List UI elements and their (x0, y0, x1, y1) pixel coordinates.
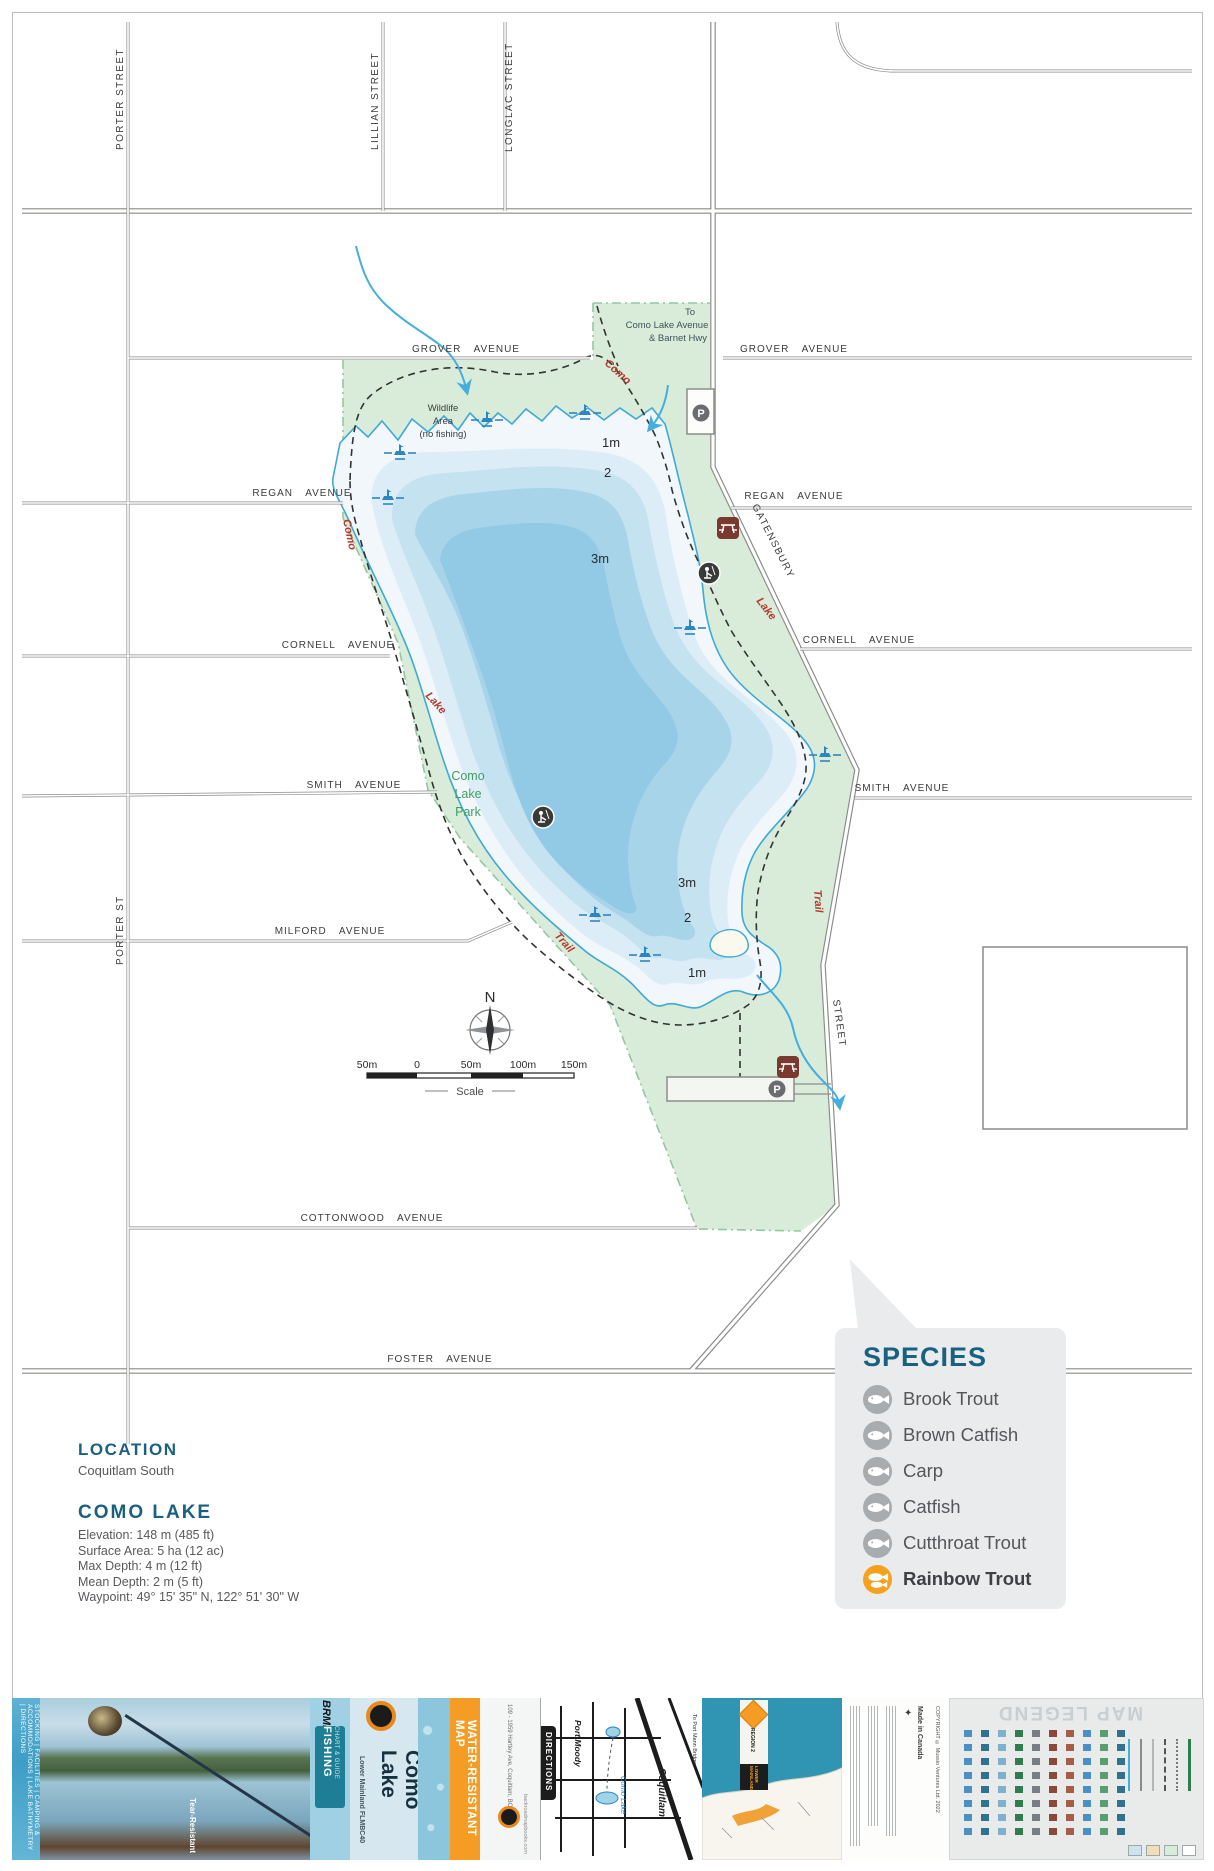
species-name: Brown Catfish (903, 1424, 1018, 1446)
svg-text:Como Lake Avenue: Como Lake Avenue (626, 320, 709, 331)
street-label-porter: PORTER STREET (115, 48, 126, 150)
svg-text:Como Lake: Como Lake (619, 1776, 628, 1814)
cover-spine: FISHING HOT SPOTS | SPECIES & STOCKING |… (12, 1698, 40, 1860)
species-row: Brook Trout (863, 1381, 1066, 1417)
publisher-address: 109 - 1959 Hartley Ave, Coquitlam, BC (506, 1704, 512, 1807)
fish-icon (863, 1493, 892, 1522)
region-map-art (702, 1698, 842, 1860)
cover-title: Como Lake (376, 1750, 418, 1860)
street-label-porter-st: PORTER ST (115, 895, 126, 965)
region-name-band: LOWER MAINLAND (740, 1764, 768, 1790)
street-label-lillian: LILLIAN STREET (370, 52, 381, 150)
species-title: SPECIES (863, 1342, 1066, 1373)
svg-text:To: To (685, 307, 695, 318)
cover-photo: Tear-Resistant (40, 1698, 310, 1860)
svg-text:To Port Mann Bridge: To Port Mann Bridge (691, 1714, 697, 1764)
backroad-mapbooks-badge-icon (366, 1701, 396, 1731)
park-label: Como Lake Park (451, 769, 484, 819)
svg-text:150m: 150m (561, 1059, 588, 1071)
fine-print-text (850, 1706, 861, 1846)
svg-text:Wildlife: Wildlife (428, 403, 459, 414)
svg-text:Coquitlam: Coquitlam (656, 1768, 667, 1817)
shore-fishing-icon (532, 806, 554, 828)
region-map-panel: REGION 2 LOWER MAINLAND (702, 1698, 842, 1860)
directions-inset-map: Port Moody Como Lake Coquitlam To Port M… (540, 1698, 704, 1860)
brmb-round-logo (498, 1806, 520, 1828)
ave-label-smith-l: SMITH AVENUE (307, 780, 402, 791)
fish-icon (863, 1385, 892, 1414)
cover-subtitle: Lower Mainland FLMBC40 (358, 1756, 365, 1843)
inset-map-art: Port Moody Como Lake Coquitlam To Port M… (541, 1698, 703, 1860)
lake-info-block: LOCATION Coquitlam South COMO LAKE Eleva… (78, 1440, 408, 1606)
legend-icons (964, 1725, 1125, 1835)
street-label-longlac: LONGLAC STREET (504, 42, 515, 152)
water-resistant-label: WATER-RESISTANT MAP (453, 1720, 477, 1860)
series-band: BRMB FISHING CHART & GUIDE (310, 1698, 350, 1860)
species-panel: SPECIES Brook Trout Brown Catfish Carp C… (835, 1328, 1066, 1609)
scale-bar: 50m 0 50m 100m 150m Scale (357, 1059, 588, 1098)
spine-features: FISHING HOT SPOTS | SPECIES & STOCKING |… (19, 1704, 40, 1854)
svg-text:(no fishing): (no fishing) (420, 429, 467, 440)
map-legend-panel: MAP LEGEND (949, 1698, 1204, 1860)
svg-text:0: 0 (414, 1059, 420, 1071)
street-label-street: STREET (830, 999, 848, 1048)
picnic-icon (717, 517, 739, 539)
stat-waypoint: Waypoint: 49° 15' 35" N, 122° 51' 30" W (78, 1590, 408, 1606)
lake (333, 406, 815, 1008)
species-row: Brown Catfish (863, 1417, 1066, 1453)
species-name: Brook Trout (903, 1388, 999, 1410)
stat-mean-depth: Mean Depth: 2 m (5 ft) (78, 1575, 408, 1591)
stat-max-depth: Max Depth: 4 m (12 ft) (78, 1559, 408, 1575)
fishing-reel-photo (88, 1706, 122, 1736)
ave-label-cornell-l: CORNELL AVENUE (282, 640, 394, 651)
fish-icon (863, 1421, 892, 1450)
ave-label-smith-r: SMITH AVENUE (855, 783, 950, 794)
shore-fishing-icon (698, 562, 720, 584)
svg-text:100m: 100m (510, 1059, 537, 1071)
location-title: LOCATION (78, 1440, 408, 1460)
species-name: Rainbow Trout (903, 1568, 1031, 1590)
picnic-icon (777, 1056, 799, 1078)
water-resistant-band: WATER-RESISTANT MAP (450, 1698, 480, 1860)
copyright: COPYRIGHT © Mussio Ventures Ltd. 2022 (934, 1706, 940, 1813)
species-name: Cutthroat Trout (903, 1532, 1026, 1554)
water-droplets-art (418, 1698, 450, 1860)
island (710, 930, 748, 957)
parking-icon: P (769, 1081, 786, 1098)
species-name: Carp (903, 1460, 943, 1482)
depth-label: 3m (591, 551, 609, 566)
svg-text:Scale: Scale (456, 1086, 484, 1098)
ave-label-cornell-r: CORNELL AVENUE (803, 635, 915, 646)
stat-elevation: Elevation: 148 m (485 ft) (78, 1528, 408, 1544)
trail-label-trail: Trail (811, 889, 825, 914)
fishing-rod-photo (124, 1714, 310, 1842)
cover-title-panel: Lower Mainland FLMBC40 Como Lake (350, 1698, 418, 1860)
ave-label-regan-l: REGAN AVENUE (252, 488, 351, 499)
depth-label: 1m (688, 965, 706, 980)
map-legend-title: MAP LEGEND (980, 1701, 1160, 1723)
fishing-chart-band: FISHING CHART & GUIDE (315, 1726, 345, 1808)
fish-icon (863, 1565, 892, 1594)
publisher-website: backroadmapbooks.com (522, 1794, 528, 1854)
fine-print-text (868, 1706, 879, 1826)
svg-text:50m: 50m (357, 1059, 378, 1071)
fish-icon (863, 1457, 892, 1486)
directions-label: DIRECTIONS (544, 1732, 553, 1800)
made-in-canada: Made in Canada (916, 1706, 923, 1759)
species-row: Cutthroat Trout (863, 1525, 1066, 1561)
svg-text:Lake: Lake (454, 787, 481, 801)
fishing-map-page: { "map": { "streets": { "porter_top": "P… (0, 0, 1214, 1871)
species-name: Catfish (903, 1496, 961, 1518)
depth-label: 2 (684, 910, 691, 925)
ave-label-grover-r: GROVER AVENUE (740, 344, 848, 355)
lake-title: COMO LAKE (78, 1502, 408, 1524)
ave-label-foster: FOSTER AVENUE (387, 1354, 492, 1365)
stat-surface-area: Surface Area: 5 ha (12 ac) (78, 1544, 408, 1560)
series-subtitle: CHART & GUIDE (333, 1726, 339, 1808)
species-row-highlighted: Rainbow Trout (863, 1561, 1066, 1597)
depth-label: 1m (602, 435, 620, 450)
location-value: Coquitlam South (78, 1463, 408, 1478)
ave-label-regan-r: REGAN AVENUE (744, 491, 843, 502)
svg-text:P: P (697, 408, 704, 420)
svg-text:N: N (485, 989, 496, 1006)
directions-tab: DIRECTIONS (541, 1726, 556, 1800)
back-cover-panel: ✦ Made in Canada COPYRIGHT © Mussio Vent… (842, 1698, 949, 1860)
species-row: Carp (863, 1453, 1066, 1489)
region-number: REGION 2 (749, 1728, 755, 1752)
depth-label: 2 (604, 465, 611, 480)
svg-text:Area: Area (433, 416, 454, 427)
compass-rose: N (465, 989, 515, 1055)
species-row: Catfish (863, 1489, 1066, 1525)
ave-label-cottonwood: COTTONWOOD AVENUE (301, 1213, 444, 1224)
publisher-panel: 109 - 1959 Hartley Ave, Coquitlam, BC ba… (480, 1698, 540, 1860)
svg-text:50m: 50m (461, 1059, 482, 1071)
fine-print-text (886, 1706, 897, 1836)
tear-resistant-label: Tear-Resistant (188, 1798, 197, 1853)
svg-text:& Barnet Hwy: & Barnet Hwy (649, 333, 707, 344)
svg-text:Park: Park (455, 805, 481, 819)
ave-label-grover-l: GROVER AVENUE (412, 344, 520, 355)
parking-icon: P (693, 405, 710, 422)
svg-text:Como: Como (451, 769, 484, 783)
svg-text:P: P (773, 1084, 780, 1096)
property-outline (983, 947, 1187, 1129)
fish-icon (863, 1529, 892, 1558)
maple-leaf-icon: ✦ (904, 1708, 912, 1719)
depth-label: 3m (678, 875, 696, 890)
series-title: FISHING (321, 1726, 333, 1808)
ave-label-milford: MILFORD AVENUE (275, 926, 386, 937)
map-cover-strip: FISHING HOT SPOTS | SPECIES & STOCKING |… (12, 1698, 1204, 1860)
svg-text:Port Moody: Port Moody (573, 1720, 583, 1768)
region-name: LOWER MAINLAND (749, 1766, 759, 1790)
